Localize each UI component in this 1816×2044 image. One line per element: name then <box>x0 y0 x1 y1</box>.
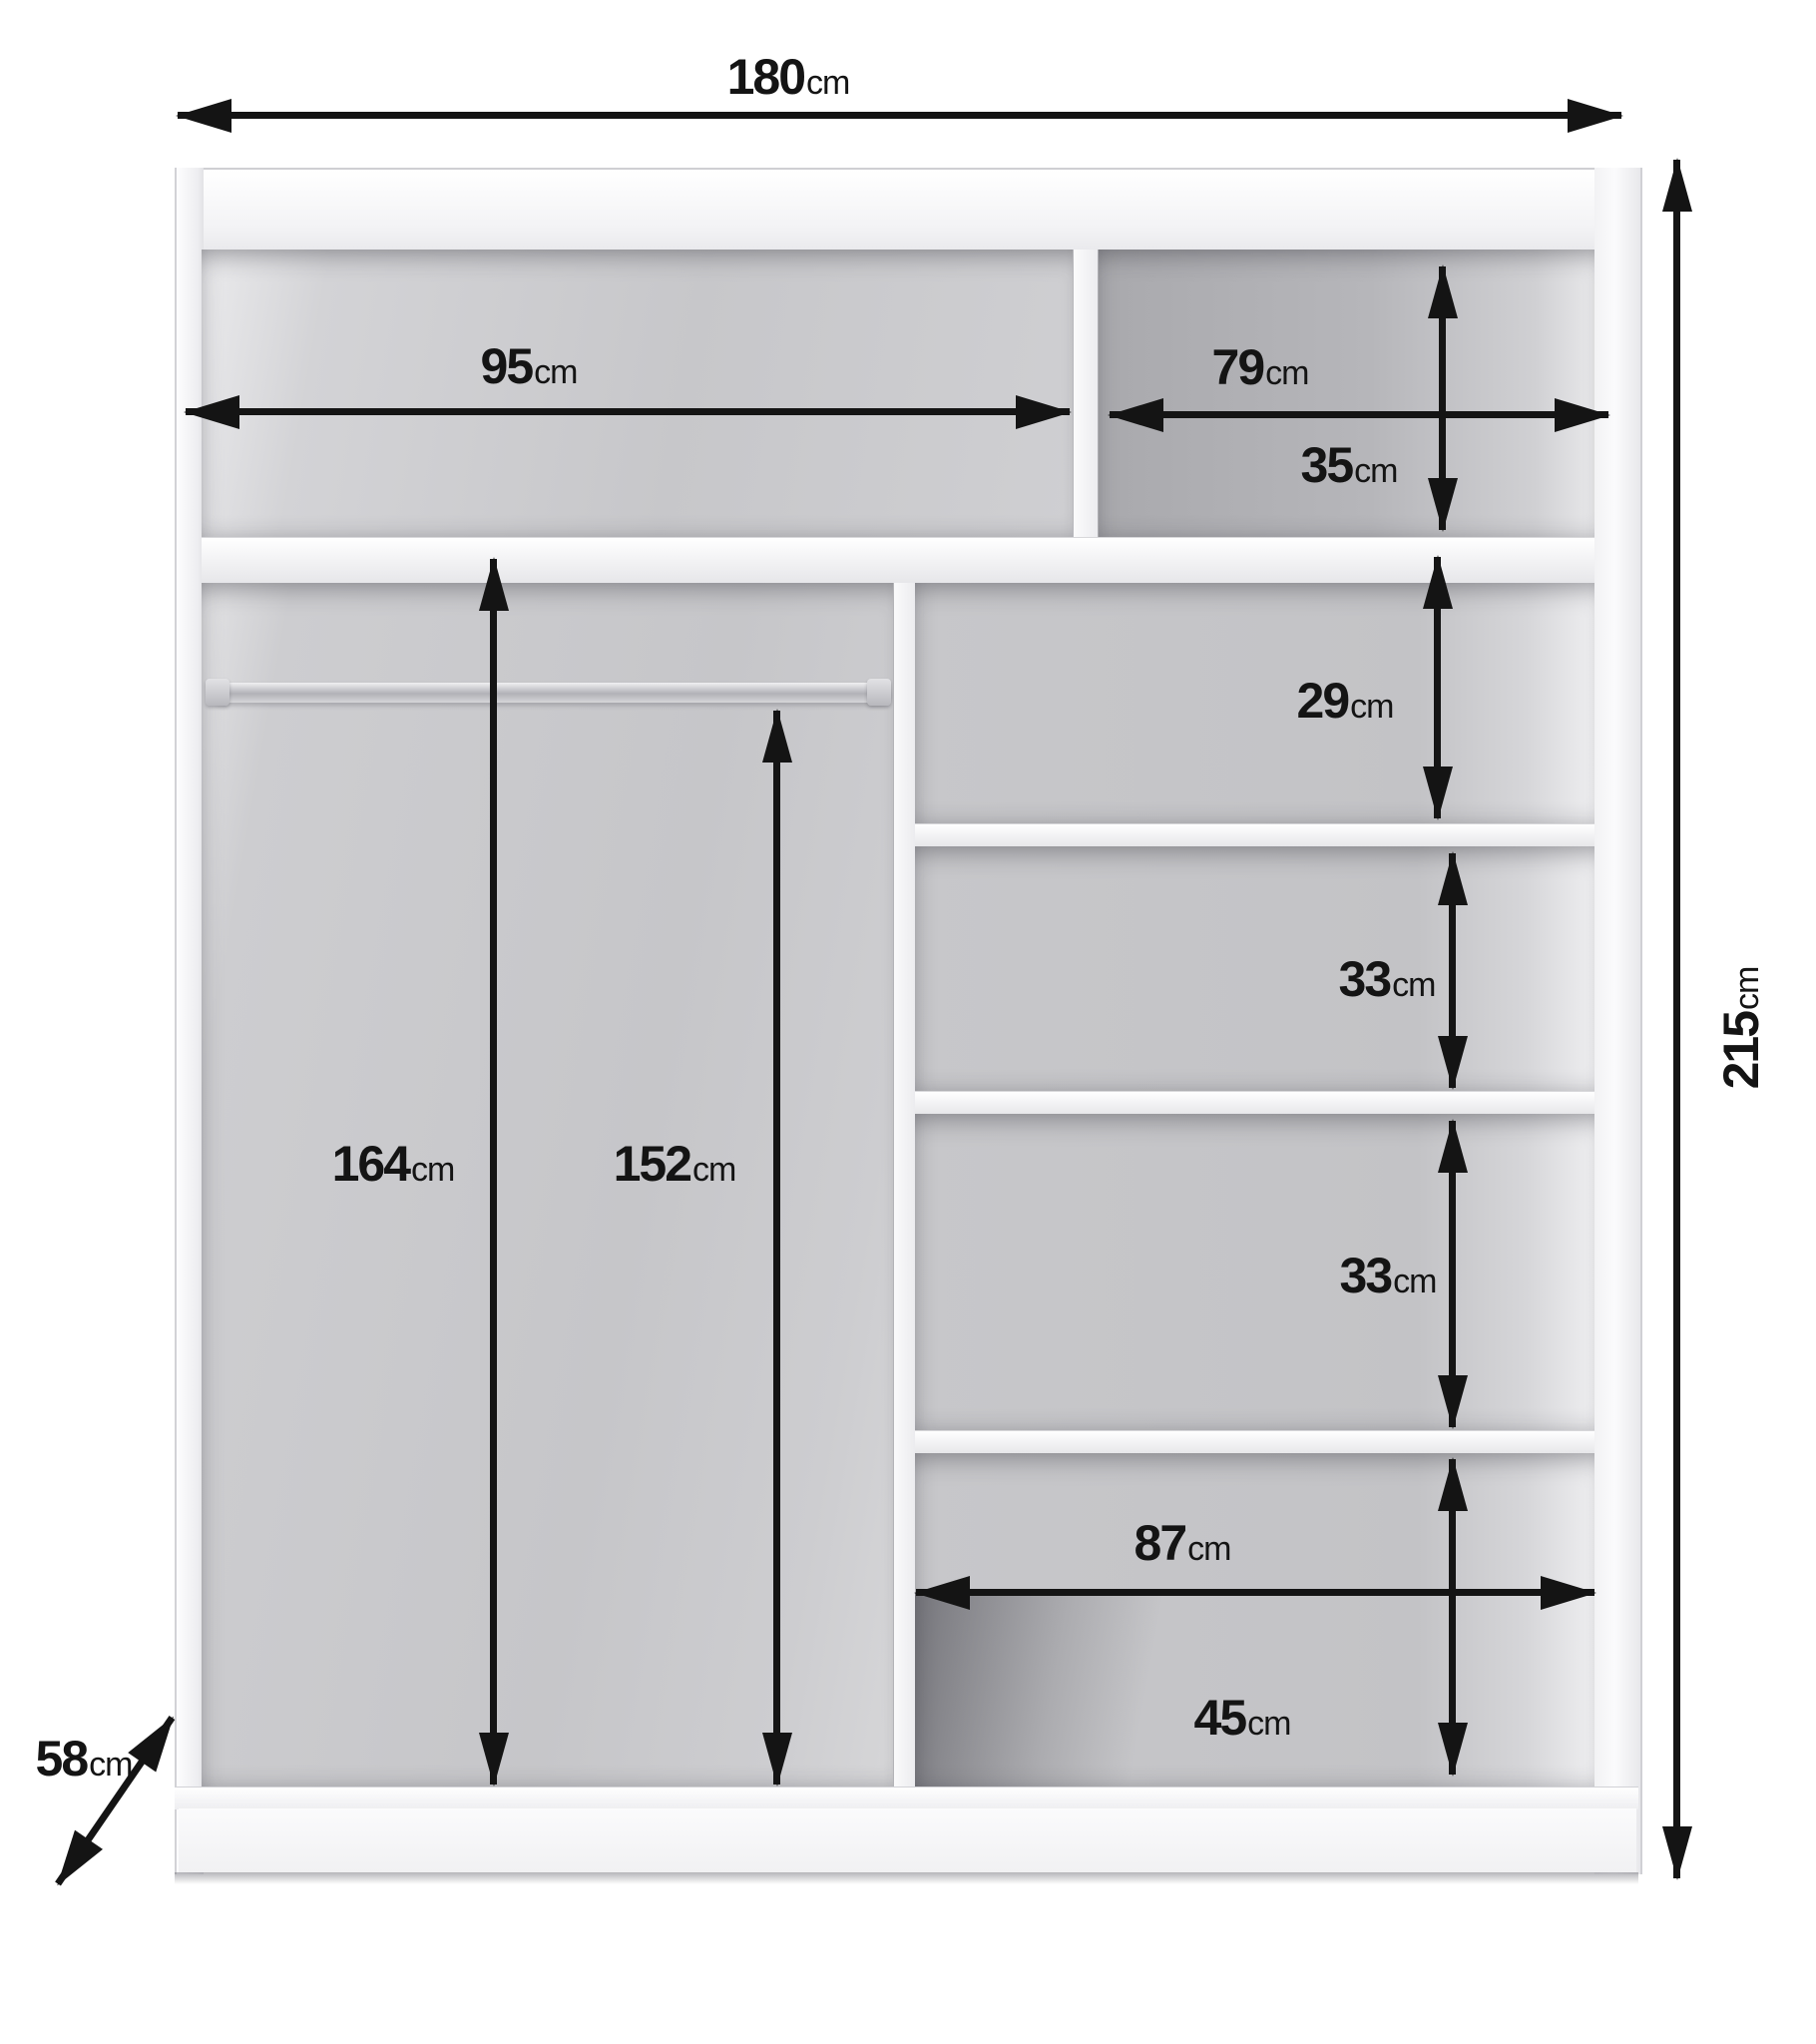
label-bottom-right-width: 87cm <box>1135 1514 1231 1572</box>
label-shelf-gap-1-unit: cm <box>1350 688 1393 727</box>
arrowhead-up-icon <box>1423 555 1453 609</box>
hanging-compartment <box>202 583 893 1787</box>
label-bottom-right-height-value: 45 <box>1194 1689 1246 1747</box>
label-overall-depth: 58cm <box>36 1730 133 1788</box>
label-shelf-gap-1: 29cm <box>1297 672 1394 730</box>
label-hanging-height-right-value: 152 <box>614 1135 690 1193</box>
dim-arrow-top-left-width <box>186 408 1070 415</box>
arrowhead-down-icon <box>762 1733 792 1787</box>
dim-arrow-bottom-right-height <box>1449 1459 1456 1775</box>
arrowhead-left-icon <box>914 1576 970 1610</box>
arrowhead-left-icon <box>176 99 231 133</box>
label-shelf-gap-3-unit: cm <box>1393 1263 1436 1301</box>
arrowhead-down-icon <box>1438 1036 1468 1090</box>
dim-arrow-top-right-width <box>1110 411 1608 418</box>
dim-arrow-hanging-height-right <box>773 711 780 1785</box>
arrowhead-left-icon <box>1108 398 1163 432</box>
dim-arrow-overall-height <box>1673 160 1680 1878</box>
label-shelf-gap-2-unit: cm <box>1392 966 1435 1005</box>
dim-arrow-top-right-height <box>1439 266 1446 530</box>
label-bottom-right-height: 45cm <box>1194 1689 1291 1747</box>
label-hanging-height-right-unit: cm <box>692 1151 735 1190</box>
rod-bracket-left <box>206 679 229 706</box>
label-bottom-right-width-value: 87 <box>1135 1514 1186 1572</box>
label-overall-height: 215cm <box>1712 967 1770 1090</box>
wardrobe-top-panel <box>175 168 1640 253</box>
label-hanging-height-left: 164cm <box>332 1135 455 1193</box>
top-left-compartment <box>202 250 1073 537</box>
top-vertical-divider <box>1073 250 1099 541</box>
label-hanging-height-left-unit: cm <box>411 1151 454 1190</box>
label-shelf-gap-1-value: 29 <box>1297 672 1349 730</box>
label-shelf-gap-3-value: 33 <box>1340 1247 1392 1304</box>
wardrobe-floor <box>175 1787 1638 1809</box>
label-top-right-width-unit: cm <box>1265 354 1308 393</box>
label-bottom-right-width-unit: cm <box>1187 1530 1230 1569</box>
label-top-right-height-unit: cm <box>1354 452 1397 491</box>
label-top-left-width-value: 95 <box>481 337 533 395</box>
arrowhead-right-icon <box>1541 1576 1596 1610</box>
label-hanging-height-right: 152cm <box>614 1135 736 1193</box>
label-top-right-width-value: 79 <box>1212 338 1264 396</box>
label-top-right-width: 79cm <box>1212 338 1309 396</box>
label-shelf-gap-2-value: 33 <box>1339 950 1391 1008</box>
arrowhead-left-icon <box>184 395 239 429</box>
arrowhead-right-icon <box>1555 398 1610 432</box>
dim-arrow-overall-width <box>178 112 1621 119</box>
label-overall-width-unit: cm <box>806 64 849 103</box>
label-overall-width: 180cm <box>727 48 850 106</box>
label-overall-height-unit: cm <box>1728 967 1767 1010</box>
arrowhead-up-icon <box>1438 1457 1468 1511</box>
dim-arrow-hanging-height-left <box>490 559 497 1785</box>
label-overall-height-value: 215 <box>1712 1012 1770 1089</box>
wardrobe-dimension-diagram: 180cm 215cm 58cm 95cm 79cm 35cm 29cm 33c… <box>0 0 1816 2044</box>
arrowhead-right-icon <box>1568 99 1623 133</box>
label-shelf-gap-2: 33cm <box>1339 950 1436 1008</box>
label-overall-width-value: 180 <box>727 48 804 106</box>
label-top-right-height: 35cm <box>1301 436 1398 494</box>
arrowhead-up-icon <box>1438 1119 1468 1173</box>
arrowhead-down-icon <box>1423 766 1453 820</box>
floor-drop-shadow <box>175 1872 1638 1884</box>
right-compartment-3 <box>915 1114 1594 1430</box>
arrowhead-left-icon <box>43 1829 103 1894</box>
arrowhead-up-icon <box>762 709 792 763</box>
dim-arrow-shelf-gap-3 <box>1449 1121 1456 1427</box>
label-top-left-width-unit: cm <box>534 353 577 392</box>
arrowhead-up-icon <box>1428 264 1458 318</box>
label-hanging-height-left-value: 164 <box>332 1135 409 1193</box>
dim-arrow-bottom-right-width <box>916 1589 1594 1596</box>
label-top-left-width: 95cm <box>481 337 578 395</box>
arrowhead-down-icon <box>1662 1826 1692 1880</box>
arrowhead-down-icon <box>1438 1375 1468 1429</box>
long-shelf <box>202 537 1594 586</box>
dim-arrow-shelf-gap-1 <box>1434 557 1441 818</box>
arrowhead-down-icon <box>1428 478 1458 532</box>
right-compartment-1 <box>915 583 1594 823</box>
label-bottom-right-height-unit: cm <box>1247 1705 1290 1744</box>
label-top-right-height-value: 35 <box>1301 436 1353 494</box>
hanging-rod <box>212 683 891 703</box>
arrowhead-up-icon <box>1662 158 1692 212</box>
arrowhead-up-icon <box>479 557 509 611</box>
arrowhead-up-icon <box>1438 851 1468 905</box>
dim-arrow-shelf-gap-2 <box>1449 853 1456 1088</box>
label-overall-depth-unit: cm <box>89 1746 132 1785</box>
arrowhead-down-icon <box>479 1733 509 1787</box>
label-shelf-gap-3: 33cm <box>1340 1247 1437 1304</box>
arrowhead-down-icon <box>1438 1723 1468 1777</box>
rod-bracket-right <box>867 679 891 706</box>
label-overall-depth-value: 58 <box>36 1730 88 1788</box>
right-compartment-2 <box>915 846 1594 1091</box>
wardrobe-plinth <box>179 1808 1636 1872</box>
arrowhead-right-icon <box>1016 395 1072 429</box>
